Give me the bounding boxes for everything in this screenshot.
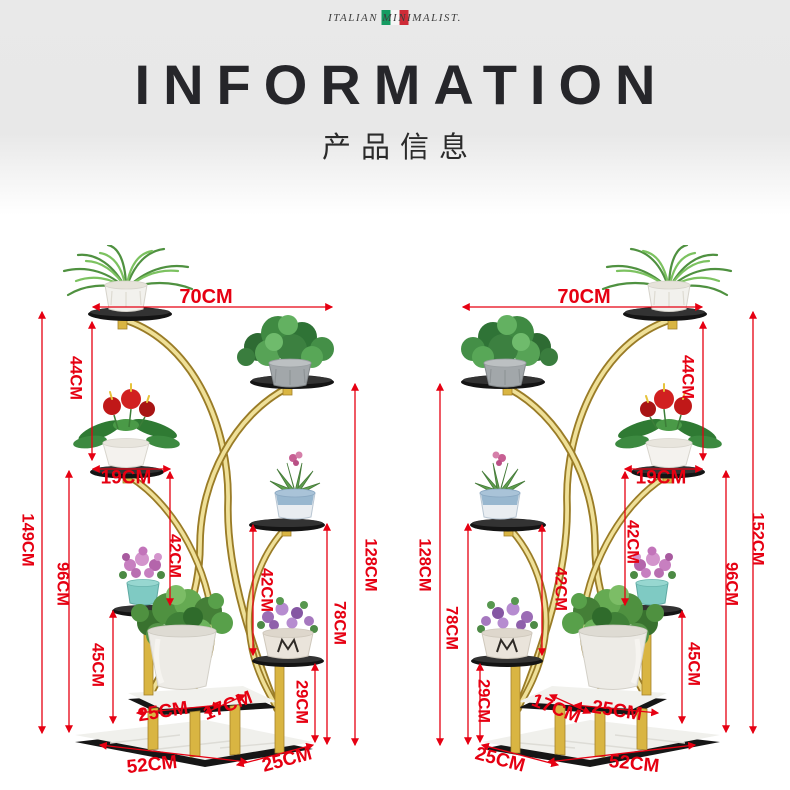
dim-left-base-length: 52CM [126, 753, 178, 777]
dim-left-lower-gap: 42CM [258, 568, 275, 612]
dim-left-shelf-width: 19CM [101, 469, 152, 488]
dim-left-upper-gap: 42CM [166, 534, 183, 578]
page-subtitle: 产品信息 [0, 124, 790, 166]
dim-right-upper-gap: 42CM [624, 520, 641, 564]
dim-right-overall-height: 152CM [749, 512, 766, 565]
dim-right-top-width: 70CM [557, 287, 610, 307]
dim-right-foot-height: 29CM [475, 679, 492, 723]
header-band: ITALIAN MINIMALIST. INFORMATION 产品信息 [0, 0, 790, 215]
brand-logo-text: ITALIAN MINIMALIST. [328, 12, 462, 24]
dim-left-foot-height: 29CM [293, 680, 310, 724]
dim-right-lower-tier-height: 45CM [685, 642, 702, 686]
dim-right-tier1-height: 44CM [679, 355, 696, 399]
dim-right-inner-height: 78CM [443, 606, 460, 650]
dim-left-lower-tier-height: 45CM [89, 643, 106, 687]
dim-left-inner-height: 78CM [331, 601, 348, 645]
product-information-page: ITALIAN MINIMALIST. INFORMATION 产品信息 [0, 0, 790, 790]
dim-right-frame-height: 128CM [416, 538, 433, 591]
plant-stand-right-illustration [400, 245, 765, 780]
page-title: INFORMATION [0, 52, 790, 117]
dim-left-overall-height: 149CM [19, 513, 36, 566]
dim-right-mid-column-height: 96CM [723, 562, 740, 606]
dim-left-frame-height: 128CM [362, 538, 379, 591]
dim-left-tier1-height: 44CM [67, 356, 84, 400]
dim-right-base-length: 52CM [608, 752, 660, 776]
dim-right-lower-gap: 42CM [552, 567, 569, 611]
brand-logo: ITALIAN MINIMALIST. [0, 8, 790, 30]
dim-left-mid-column-height: 96CM [54, 562, 71, 606]
dim-right-shelf-width: 19CM [636, 469, 687, 488]
dim-left-top-width: 70CM [179, 287, 232, 307]
